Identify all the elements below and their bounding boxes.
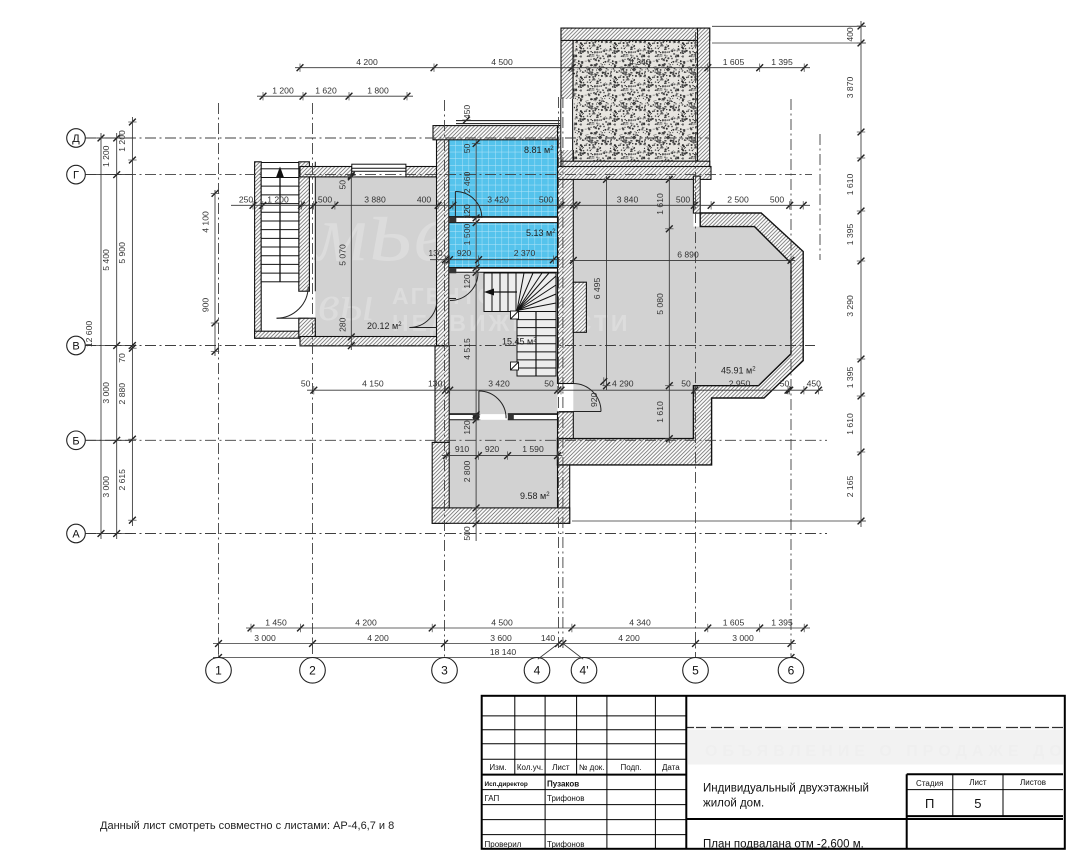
svg-text:6: 6	[788, 664, 795, 678]
svg-text:920: 920	[485, 444, 500, 454]
svg-text:№ док.: № док.	[579, 763, 605, 772]
svg-text:3 420: 3 420	[487, 194, 509, 204]
svg-text:3 880: 3 880	[364, 194, 386, 204]
svg-text:50: 50	[462, 144, 472, 154]
svg-text:500: 500	[770, 194, 785, 204]
svg-text:2 165: 2 165	[845, 476, 855, 498]
svg-text:Листов: Листов	[1020, 778, 1046, 787]
svg-text:мье: мье	[313, 177, 451, 281]
svg-text:Изм.: Изм.	[489, 763, 506, 772]
svg-text:1 200: 1 200	[267, 194, 289, 204]
svg-text:910: 910	[455, 444, 470, 454]
svg-text:20.12 м2: 20.12 м2	[367, 321, 402, 331]
svg-text:5 070: 5 070	[338, 244, 348, 266]
svg-text:В: В	[72, 341, 79, 353]
svg-text:1 610: 1 610	[655, 193, 665, 215]
svg-text:6 890: 6 890	[677, 249, 699, 259]
svg-text:4 200: 4 200	[618, 633, 640, 643]
svg-text:1: 1	[215, 664, 222, 678]
svg-text:50: 50	[681, 379, 691, 389]
svg-text:500: 500	[539, 194, 554, 204]
svg-text:4 515: 4 515	[462, 338, 472, 360]
svg-text:5 900: 5 900	[117, 242, 127, 264]
svg-text:Пузаков: Пузаков	[547, 780, 579, 789]
svg-text:1 590: 1 590	[522, 444, 544, 454]
svg-text:9.58 м2: 9.58 м2	[520, 491, 550, 501]
svg-text:1 395: 1 395	[845, 367, 855, 389]
svg-text:1 500: 1 500	[462, 224, 472, 246]
svg-text:3 000: 3 000	[732, 633, 754, 643]
svg-text:5 080: 5 080	[655, 293, 665, 315]
svg-text:Данный лист смотреть совместно: Данный лист смотреть совместно с листами…	[100, 820, 394, 832]
svg-text:1 395: 1 395	[771, 57, 793, 67]
svg-text:4 500: 4 500	[491, 57, 513, 67]
svg-text:250: 250	[239, 194, 254, 204]
svg-text:Проверил: Проверил	[485, 840, 522, 849]
svg-text:Г: Г	[73, 170, 79, 182]
svg-text:1 610: 1 610	[655, 401, 665, 423]
svg-text:6 495: 6 495	[592, 278, 602, 300]
svg-text:8.81 м2: 8.81 м2	[524, 145, 554, 155]
svg-text:Дата: Дата	[662, 763, 680, 772]
svg-text:1 605: 1 605	[723, 618, 745, 628]
svg-text:280: 280	[338, 317, 348, 332]
svg-text:1 800: 1 800	[367, 86, 389, 96]
svg-text:3 000: 3 000	[101, 382, 111, 404]
svg-text:Стадия: Стадия	[916, 779, 943, 788]
svg-text:130: 130	[428, 248, 443, 258]
svg-text:2 370: 2 370	[514, 248, 536, 258]
svg-text:1 395: 1 395	[845, 224, 855, 246]
svg-text:1 395: 1 395	[771, 618, 793, 628]
svg-text:1 200: 1 200	[101, 145, 111, 167]
svg-text:4 340: 4 340	[629, 618, 651, 628]
svg-text:45.91 м2: 45.91 м2	[721, 366, 756, 376]
svg-text:Индивидуальный двухэтажный: Индивидуальный двухэтажный	[703, 783, 869, 795]
svg-text:920: 920	[457, 248, 472, 258]
svg-text:2 460: 2 460	[462, 172, 472, 194]
svg-text:4 200: 4 200	[355, 618, 377, 628]
svg-text:4 290: 4 290	[612, 379, 634, 389]
svg-text:140: 140	[541, 633, 556, 643]
svg-text:Лист: Лист	[552, 763, 570, 772]
svg-text:4 340: 4 340	[629, 57, 651, 67]
svg-text:500: 500	[676, 194, 691, 204]
svg-text:2 800: 2 800	[462, 461, 472, 483]
svg-text:2 880: 2 880	[117, 383, 127, 405]
svg-text:4 200: 4 200	[367, 633, 389, 643]
svg-text:План подвалана отм -2,600 м.: План подвалана отм -2,600 м.	[703, 839, 864, 850]
svg-text:1 610: 1 610	[845, 174, 855, 196]
svg-text:Подп.: Подп.	[620, 763, 641, 772]
svg-text:4 500: 4 500	[491, 618, 513, 628]
svg-text:120: 120	[462, 420, 472, 435]
svg-text:Д: Д	[72, 133, 80, 145]
svg-text:5.13 м2: 5.13 м2	[526, 228, 556, 238]
svg-text:50: 50	[544, 379, 554, 389]
svg-text:400: 400	[417, 194, 432, 204]
svg-text:2 615: 2 615	[117, 469, 127, 491]
svg-text:1 605: 1 605	[723, 57, 745, 67]
svg-text:500: 500	[318, 194, 333, 204]
svg-text:4 200: 4 200	[356, 57, 378, 67]
svg-text:18 140: 18 140	[490, 647, 517, 657]
svg-text:120: 120	[462, 274, 472, 289]
svg-text:70: 70	[117, 353, 127, 363]
svg-text:Лист: Лист	[969, 778, 987, 787]
svg-text:450: 450	[807, 379, 822, 389]
svg-text:50: 50	[780, 379, 790, 389]
svg-text:3: 3	[441, 664, 448, 678]
svg-text:15.45 м2: 15.45 м2	[502, 337, 537, 347]
svg-text:120: 120	[462, 204, 472, 219]
svg-text:2 950: 2 950	[729, 379, 751, 389]
svg-text:2 500: 2 500	[727, 194, 749, 204]
svg-text:3 840: 3 840	[617, 194, 639, 204]
svg-text:5: 5	[692, 664, 699, 678]
svg-text:1 620: 1 620	[315, 86, 337, 96]
svg-text:3 000: 3 000	[101, 476, 111, 498]
svg-text:ГАП: ГАП	[485, 794, 500, 803]
svg-text:50: 50	[338, 180, 348, 190]
svg-text:1 450: 1 450	[265, 618, 287, 628]
svg-text:П: П	[925, 796, 934, 811]
svg-text:5: 5	[974, 796, 981, 811]
svg-text:3 870: 3 870	[845, 77, 855, 99]
svg-text:Кол.уч.: Кол.уч.	[517, 763, 543, 772]
svg-text:3 290: 3 290	[845, 295, 855, 317]
svg-text:4': 4'	[580, 664, 589, 678]
svg-text:1 200: 1 200	[272, 86, 294, 96]
svg-text:Б: Б	[72, 435, 79, 447]
svg-text:3 000: 3 000	[254, 633, 276, 643]
svg-text:400: 400	[845, 27, 855, 42]
svg-text:450: 450	[462, 105, 472, 120]
svg-text:1 610: 1 610	[845, 413, 855, 435]
svg-text:130: 130	[428, 379, 443, 389]
svg-text:Трифонов: Трифонов	[547, 794, 585, 803]
svg-text:50: 50	[301, 379, 311, 389]
svg-text:Трифонов: Трифонов	[547, 840, 585, 849]
svg-text:5 400: 5 400	[101, 249, 111, 271]
svg-text:4 150: 4 150	[362, 379, 384, 389]
svg-text:ОБЪЯВЛЕНИЕ О ПРОДАЖЕ ДОМА: ОБЪЯВЛЕНИЕ О ПРОДАЖЕ ДОМА	[705, 743, 1068, 760]
svg-text:1 200: 1 200	[117, 130, 127, 152]
svg-text:900: 900	[201, 298, 211, 313]
svg-text:2: 2	[309, 664, 316, 678]
svg-text:3 420: 3 420	[488, 379, 510, 389]
svg-text:жилой дом.: жилой дом.	[703, 798, 764, 810]
svg-text:Исп.директор: Исп.директор	[485, 781, 528, 788]
svg-text:А: А	[72, 529, 80, 541]
svg-text:4: 4	[534, 664, 541, 678]
svg-text:3 600: 3 600	[490, 633, 512, 643]
svg-text:4 100: 4 100	[201, 211, 211, 233]
svg-text:920: 920	[589, 392, 599, 407]
svg-text:500: 500	[462, 526, 472, 541]
